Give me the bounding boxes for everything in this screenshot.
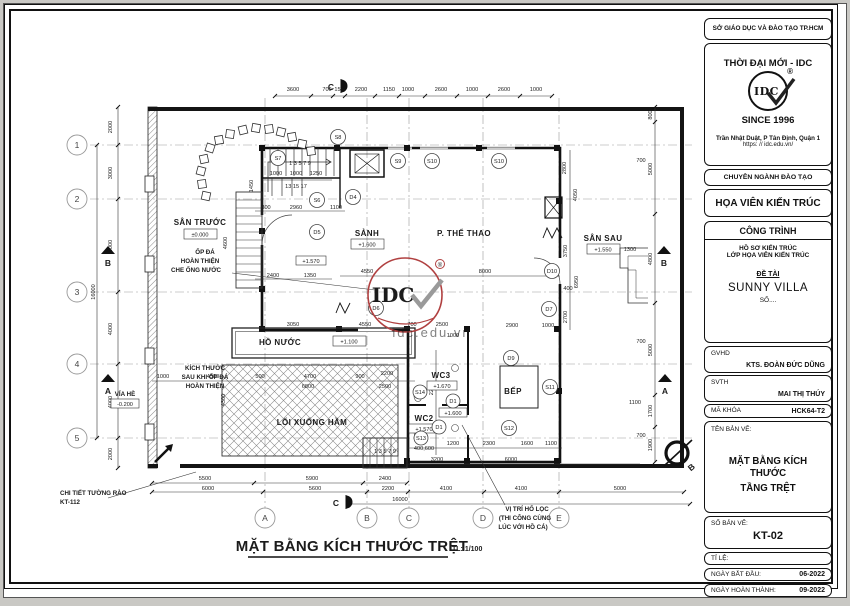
note-op-da-2: HOÀN THIỆN	[181, 257, 220, 265]
dim-top-0: 3600	[287, 87, 299, 93]
stair-top-numbers2: 13 15 17	[285, 184, 307, 190]
dim-left-3: 4000	[108, 323, 114, 335]
dim-b2-4: 4100	[515, 486, 527, 492]
drawing-name-line2: TẦNG TRỆT	[710, 482, 826, 494]
dim-inner-9: 8000	[479, 269, 491, 275]
topic-number: SỐ....	[705, 297, 831, 304]
tag-s13: S13	[416, 436, 426, 442]
tag-d1a: D1	[449, 399, 456, 405]
dim-b2-1: 5600	[309, 486, 321, 492]
dim-inner-2: 1250	[310, 171, 322, 177]
dim-top-3: 2200	[355, 87, 367, 93]
room-san-sau: SÂN SAU	[584, 234, 623, 243]
student-name: MAI THỊ THÚY	[778, 391, 825, 398]
watermark-url: idc.edu.vn	[392, 325, 471, 340]
room-san-truoc: SÂN TRƯỚC	[174, 218, 227, 227]
dim-right-v-1: 5000	[648, 163, 654, 175]
dim-top-8: 2600	[498, 87, 510, 93]
tag-d10: D10	[547, 269, 557, 275]
dim-inner-11: 4550	[359, 322, 371, 328]
grid-row-1: 1	[75, 140, 80, 150]
dim-inner-1: 1000	[290, 171, 302, 177]
title-block: SỞ GIÁO DỤC VÀ ĐÀO TẠO TP.HCM THỜI ĐẠI M…	[702, 12, 838, 589]
department-text: SỞ GIÁO DỤC VÀ ĐÀO TẠO TP.HCM	[705, 19, 831, 32]
date-finish-value: 09-2022	[799, 587, 825, 594]
room-the-thao: P. THỂ THAO	[437, 229, 491, 238]
level-san-truoc: ±0.000	[191, 233, 208, 239]
project-header: CÔNG TRÌNH	[705, 222, 831, 240]
room-wc2: WC2	[415, 414, 434, 423]
entrance-arrow	[155, 444, 173, 462]
dim-right-h-3: 1100	[629, 400, 641, 406]
dim-left-5: 2000	[108, 448, 114, 460]
dim-b2-2: 2200	[382, 486, 394, 492]
room-sanh: SẢNH	[355, 229, 379, 238]
level-stair: +1.570	[302, 259, 319, 265]
section-b-left: B	[105, 258, 111, 268]
section-a-right: A	[662, 386, 668, 396]
dim-inner-10: 3050	[287, 322, 299, 328]
dim-right-h-1: 1300	[624, 247, 636, 253]
note-ho-loc-1: VỊ TRÍ HỐ LỌC	[505, 505, 549, 513]
dim-top-7: 1000	[466, 87, 478, 93]
dim-inner-40: 4300	[221, 394, 227, 406]
tag-d1b: D1	[435, 425, 442, 431]
training-header: CHUYÊN NGÀNH ĐÀO TẠO	[705, 170, 831, 181]
section-c-top: C	[328, 82, 334, 92]
stair-s13-note: 400,600	[414, 446, 434, 452]
dim-right-v-5: 1900	[648, 439, 654, 451]
dim-b2-0: 6000	[202, 486, 214, 492]
dim-inner-26: 1600	[521, 441, 533, 447]
note-ho-loc-3: LÚC VỚI HỒ CÁ)	[498, 523, 547, 531]
stair-bottom-numbers: 1 3 5 7 9	[374, 449, 396, 455]
dim-inner-25: 2300	[483, 441, 495, 447]
tag-s10b: S10	[494, 159, 504, 165]
grid-row-4: 4	[75, 359, 80, 369]
tag-d4: D4	[349, 195, 356, 201]
dim-inner-22: 2900	[506, 323, 518, 329]
grid-col-b: B	[364, 513, 370, 523]
student-label: SVTH	[711, 379, 728, 386]
title-block-advisor: GVHD KTS. ĐOÀN ĐỨC DŨNG	[704, 346, 832, 373]
title-block-drawing-name: TÊN BẢN VẼ: MẶT BẰNG KÍCH THƯỚC TẦNG TRỆ…	[704, 421, 832, 513]
dim-overall-height: 16000	[91, 284, 97, 300]
dim-inner-4: 2960	[290, 205, 302, 211]
dim-inner-23: 1000	[542, 323, 554, 329]
title-block-department: SỞ GIÁO DỤC VÀ ĐÀO TẠO TP.HCM	[704, 18, 832, 40]
dim-inner-32: 3750	[563, 245, 569, 257]
dim-inner-33: 6950	[574, 276, 580, 288]
dim-right-v-0: 800	[648, 110, 654, 119]
dim-left-0: 2000	[108, 121, 114, 133]
dim-right-h-2: 700	[636, 339, 645, 345]
topic-label: ĐỀ TÀI	[705, 271, 831, 278]
dim-right-v-3: 5000	[648, 344, 654, 356]
tag-s9: S9	[395, 159, 402, 165]
topic-name: SUNNY VILLA	[705, 282, 831, 294]
grid-row-5: 5	[75, 433, 80, 443]
dim-inner-21: 2500	[379, 384, 391, 390]
dim-overall-width: 16000	[392, 497, 408, 503]
major-text: HỌA VIÊN KIẾN TRÚC	[705, 190, 831, 209]
drawing-name-label: TÊN BẢN VẼ:	[705, 422, 831, 433]
date-start-value: 06-2022	[799, 571, 825, 578]
tag-s11: S11	[545, 385, 555, 391]
dim-top-9: 1000	[530, 87, 542, 93]
grid-col-a: A	[262, 513, 268, 523]
dim-right-h-0: 700	[636, 158, 645, 164]
watermark-logo-text: IDC	[372, 283, 415, 307]
level-wc3: +1.670	[433, 384, 450, 390]
level-san-sau: +1.550	[594, 248, 611, 254]
tag-s8: S8	[335, 135, 342, 141]
dim-top-6: 2600	[435, 87, 447, 93]
room-loi-xuong-ham: LỐI XUỐNG HẦM	[277, 417, 348, 427]
rear-porch-steps	[620, 248, 648, 303]
title-block-major: HỌA VIÊN KIẾN TRÚC	[704, 189, 832, 217]
title-block-training: CHUYÊN NGÀNH ĐÀO TẠO	[704, 169, 832, 186]
dim-inner-5: 1100	[330, 205, 342, 211]
dim-right-v-4: 1700	[648, 405, 654, 417]
room-ho-nuoc: HỒ NƯỚC	[259, 337, 301, 347]
title-block-brand: THỜI ĐẠI MỚI - IDC IDC ® SINCE 1996 Trần…	[704, 43, 832, 166]
title-block-class-code: MÃ KHÓA HCK64-T2	[704, 404, 832, 418]
dim-inner-17: 4700	[304, 374, 316, 380]
dim-top-4: 1150	[383, 87, 395, 93]
section-b-right: B	[661, 258, 667, 268]
advisor-label: GVHD	[711, 350, 730, 357]
dim-inner-18: 6800	[302, 384, 314, 390]
dim-inner-29: 6000	[505, 457, 517, 463]
level-sanh: +1.600	[358, 243, 375, 249]
dim-right-h-4: 700	[636, 433, 645, 439]
date-finish-label: NGÀY HOÀN THÀNH:	[711, 587, 776, 594]
dim-top-5: 1000	[402, 87, 414, 93]
dim-b1-1: 5900	[306, 476, 318, 482]
idc-logo: IDC ®	[748, 71, 788, 111]
company-name: THỜI ĐẠI MỚI - IDC	[705, 58, 831, 69]
title-block-project: CÔNG TRÌNH HỒ SƠ KIẾN TRÚC LỚP HỌA VIÊN …	[704, 221, 832, 343]
tag-s12: S12	[504, 426, 514, 432]
plan-title: MẶT BẰNG KÍCH THƯỚC TRỆT TL: 1/100	[236, 537, 483, 557]
note-sidewalk: VỈA HÈ	[115, 390, 135, 398]
address-text: Trần Nhật Duật, P Tân Định, Quận 1	[705, 135, 831, 142]
dim-inner-3: 300	[261, 205, 270, 211]
dim-inner-31: 4050	[573, 189, 579, 201]
dim-inner-38: 1450	[249, 180, 255, 192]
grid-col-d: D	[480, 513, 486, 523]
dim-left-1: 3000	[108, 167, 114, 179]
break-symbol	[336, 303, 350, 313]
dim-inner-16: 500	[255, 374, 264, 380]
date-start-label: NGÀY BẮT ĐẦU:	[711, 571, 761, 578]
tag-d7: D7	[545, 307, 552, 313]
title-block-scale: TỈ LỆ:	[704, 552, 832, 565]
dim-b1-2: 2400	[379, 476, 391, 482]
dim-inner-34: 2700	[563, 311, 569, 323]
tag-s7: S7	[275, 156, 282, 162]
tag-s6: S6	[314, 198, 321, 204]
dim-inner-37: 400	[563, 286, 572, 292]
room-wc3: WC3	[432, 371, 451, 380]
dim-inner-0: 1000	[270, 171, 282, 177]
title-block-date-start: NGÀY BẮT ĐẦU: 06-2022	[704, 568, 832, 581]
section-a-left: A	[105, 386, 111, 396]
advisor-name: KTS. ĐOÀN ĐỨC DŨNG	[746, 362, 825, 369]
idc-logo-check-icon	[758, 75, 798, 115]
dim-inner-28: 3200	[431, 457, 443, 463]
tag-d5: D5	[313, 230, 320, 236]
grid-row-2: 2	[75, 194, 80, 204]
note-fence-1: CHI TIẾT TƯỜNG RÀO	[60, 489, 127, 497]
dim-inner-27: 1100	[545, 441, 557, 447]
note-sidewalk-level: -0.200	[117, 402, 133, 408]
project-line2: LỚP HỌA VIÊN KIẾN TRÚC	[705, 252, 831, 259]
dim-inner-8: 4550	[361, 269, 373, 275]
dim-inner-14: 1000	[157, 374, 169, 380]
section-c-bottom: C	[333, 498, 339, 508]
project-line1: HỒ SƠ KIẾN TRÚC	[705, 245, 831, 252]
title-block-student: SVTH MAI THỊ THÚY	[704, 375, 832, 402]
dim-inner-7: 1350	[304, 273, 316, 279]
dim-b2-3: 4100	[440, 486, 452, 492]
tag-s14: S14	[415, 390, 425, 396]
floor-plan-svg: 3600 700 150 2200 1150 1000 2600 1000 26…	[0, 0, 706, 601]
plan-scale-note: TL: 1/100	[452, 546, 482, 553]
title-block-sheet-number: SỐ BẢN VẼ: KT-02	[704, 516, 832, 549]
note-kich-thuoc-1: KÍCH THƯỚC	[185, 364, 226, 372]
stair-top-numbers: 1 3 5 7 9	[289, 161, 311, 167]
sheet-number-label: SỐ BẢN VẼ:	[705, 517, 831, 527]
level-wc-hall: +1.600	[444, 411, 461, 417]
plan-title-text: MẶT BẰNG KÍCH THƯỚC TRỆT	[236, 537, 468, 555]
grid-col-e: E	[556, 513, 562, 523]
room-bep: BẾP	[504, 386, 522, 396]
dim-inner-24: 1200	[447, 441, 459, 447]
tag-d9: D9	[507, 356, 514, 362]
drawing-name-line1: MẶT BẰNG KÍCH THƯỚC	[710, 455, 826, 479]
note-fence-2: KT-112	[60, 499, 81, 506]
class-code-label: MÃ KHÓA	[711, 407, 741, 414]
website-text: https: // idc.edu.vn/	[705, 142, 831, 148]
dim-b2-5: 5000	[614, 486, 626, 492]
note-kich-thuoc-3: HOÀN THIỆN	[186, 382, 225, 390]
dim-inner-30: 2800	[562, 162, 568, 174]
tag-s10a: S10	[427, 159, 437, 165]
note-kich-thuoc-2: SAU KHI ỐP ĐÁ	[182, 374, 229, 381]
dim-b1-0: 5500	[199, 476, 211, 482]
sheet-number-value: KT-02	[705, 530, 831, 542]
dim-right-v-2: 4800	[648, 253, 654, 265]
watermark-registered: ®	[438, 262, 443, 269]
scale-label: TỈ LỆ:	[711, 555, 728, 562]
note-op-da-1: ỐP ĐÁ	[195, 249, 215, 256]
since-text: SINCE 1996	[705, 115, 831, 126]
class-code-value: HCK64-T2	[792, 408, 825, 415]
dim-inner-20: 2200	[381, 371, 393, 377]
grid-col-c: C	[406, 513, 412, 523]
entry-steps	[236, 192, 262, 288]
dim-inner-39: 4600	[223, 237, 229, 249]
grid-row-3: 3	[75, 287, 80, 297]
elevator	[350, 150, 384, 177]
note-op-da-3: CHE ỐNG NƯỚC	[171, 266, 221, 274]
level-ho-nuoc: +1.100	[340, 340, 357, 346]
floor-plan-area: 3600 700 150 2200 1150 1000 2600 1000 26…	[0, 0, 706, 601]
section-b-circle-label: B	[686, 461, 697, 473]
dim-inner-19: 900	[355, 374, 364, 380]
note-ho-loc-2: (THI CÔNG CÙNG	[499, 514, 551, 522]
title-block-date-finish: NGÀY HOÀN THÀNH: 09-2022	[704, 584, 832, 597]
